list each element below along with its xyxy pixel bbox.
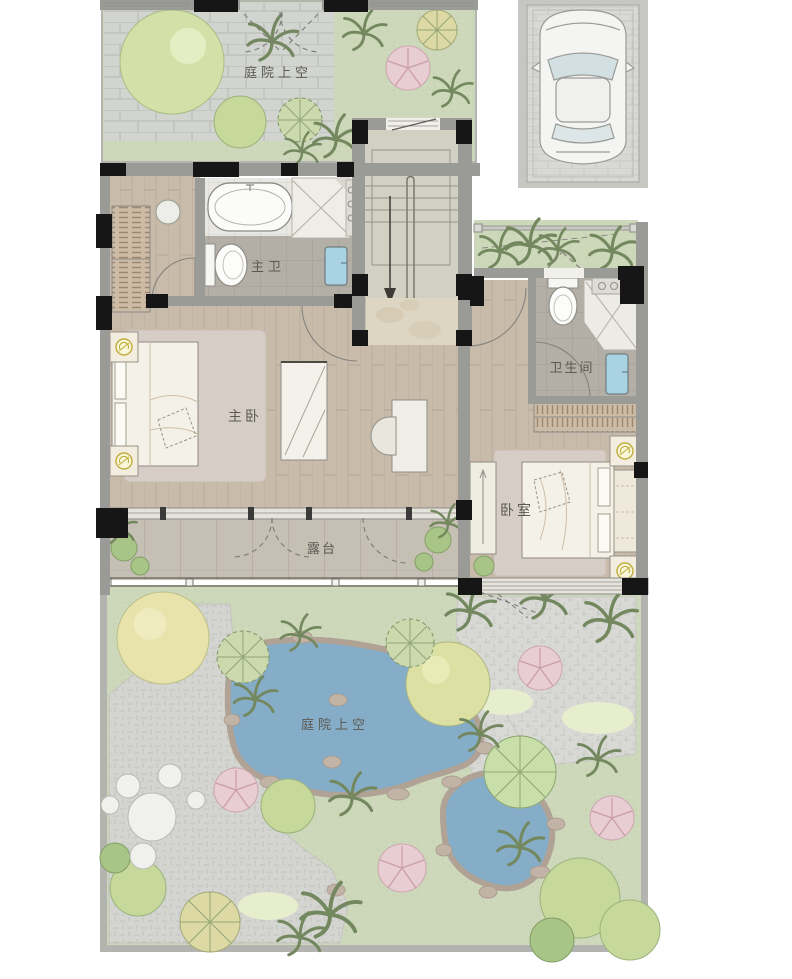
tree-highlight (134, 608, 166, 640)
bench (614, 470, 638, 552)
bedroom-label: 卧室 (500, 502, 534, 518)
yellow-tree (117, 592, 209, 684)
planter-railing (476, 226, 634, 230)
tree-highlight (170, 28, 206, 64)
floorplan-canvas: 庭院上空 (0, 0, 792, 979)
courtyard-top-label: 庭院上空 (244, 65, 312, 80)
bath-sink (606, 354, 628, 394)
lamp (617, 443, 633, 459)
car (532, 10, 634, 164)
master-bedroom-label: 主卧 (228, 408, 262, 424)
stair-floor (365, 130, 458, 298)
master-bath-label: 主卫 (251, 259, 285, 274)
railing-post (332, 579, 339, 586)
green-bush (100, 843, 130, 873)
pillow (598, 468, 610, 506)
terrace-floor (100, 518, 462, 580)
lamp (116, 339, 132, 355)
lamp (116, 453, 132, 469)
toilet-bowl (215, 244, 247, 286)
lawn-patch (562, 702, 634, 734)
terrace-plant (415, 553, 433, 571)
round-tree (214, 96, 266, 148)
terrace: 露台 (100, 504, 467, 586)
pillow (598, 514, 610, 552)
large-tree (120, 10, 224, 114)
floor-plan: 主卫 卫生间 (96, 118, 648, 618)
toilet-tank (205, 244, 215, 286)
column (194, 0, 238, 12)
bush-cluster (530, 918, 574, 962)
master-bathroom: 主卫 (203, 178, 356, 300)
lamp (617, 563, 633, 579)
car-roof (556, 78, 610, 122)
floorplan-svg: 庭院上空 (0, 0, 792, 979)
green-tree (261, 779, 315, 833)
bush-cluster (600, 900, 660, 960)
terrace-plant (131, 557, 149, 575)
parking-space (518, 0, 648, 188)
railing-post (418, 579, 425, 586)
garden-courtyard-label: 庭院上空 (301, 717, 369, 732)
staircase (365, 130, 458, 345)
plant (474, 556, 494, 576)
planter-strip (474, 219, 638, 270)
bathroom-label: 卫生间 (549, 360, 594, 375)
terrace-label: 露台 (307, 541, 337, 556)
railing-post (474, 224, 482, 232)
toilet-bowl (549, 287, 577, 325)
bath-sink (325, 247, 347, 285)
stool (156, 200, 180, 224)
desk (392, 400, 427, 472)
garden: 庭院上空 (100, 573, 660, 962)
railing-post (186, 579, 193, 586)
lawn-patch (238, 892, 298, 920)
column (324, 0, 368, 12)
